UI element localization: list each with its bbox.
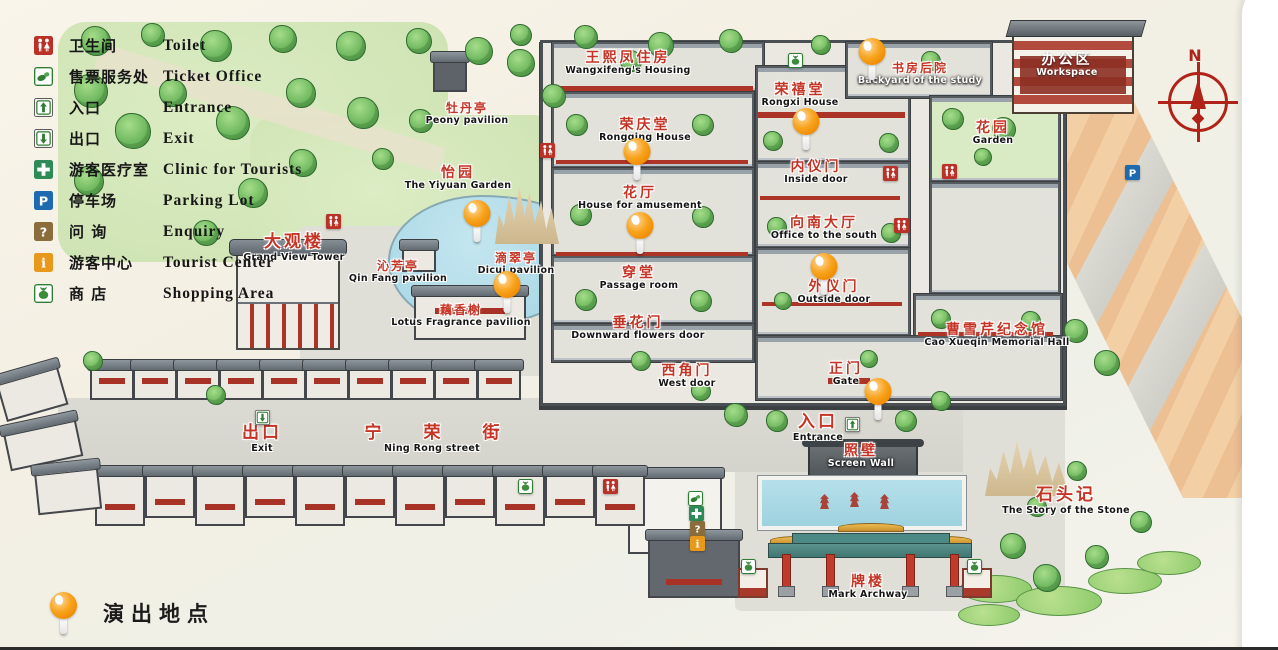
tree [719, 29, 743, 53]
map-label-office-to-south: 向南大厅Office to the south [771, 215, 877, 242]
svg-text:P: P [39, 194, 48, 209]
performance-marker[interactable] [464, 200, 491, 242]
red-sign [155, 499, 184, 505]
red-wall [760, 196, 900, 200]
shop-building [262, 366, 306, 400]
tree [724, 403, 748, 427]
red-sign [255, 499, 284, 505]
tree [566, 114, 588, 136]
red-sign [142, 378, 168, 384]
red-sign [666, 579, 722, 585]
performance-marker-icon [50, 592, 77, 634]
marker-stem [637, 237, 644, 254]
marker-head [624, 138, 651, 165]
map-label-workspace: 办公区Workspace [1036, 52, 1097, 79]
red-sign [105, 504, 134, 510]
red-wall [556, 160, 748, 164]
marker-stem [504, 296, 511, 313]
map-label-screen-wall: 照壁Screen Wall [828, 443, 894, 470]
toilet-icon [540, 143, 555, 158]
archway-base [946, 586, 963, 597]
toilet-icon [603, 479, 618, 494]
map-label-garden: 花园Garden [973, 120, 1014, 147]
toilet-icon [34, 36, 53, 55]
svg-text:P: P [1129, 168, 1136, 179]
svg-text:i: i [41, 257, 46, 272]
enquiry-icon: ? [690, 521, 705, 536]
tourist-center-icon: i [690, 536, 705, 551]
compass-needle-tail [1192, 112, 1205, 125]
red-sign [99, 378, 125, 384]
shop-building [145, 472, 195, 518]
tree [575, 289, 597, 311]
shop-building [395, 472, 445, 526]
entrance-icon [34, 98, 53, 117]
entrance-icon [845, 417, 860, 432]
map-label-ningrong-street: 宁荣街Ning Rong street [323, 424, 542, 454]
legend-item-shopping: 商 店Shopping Area [34, 278, 302, 309]
legend-item-exit: 出口Exit [34, 123, 302, 154]
tree [766, 410, 788, 432]
exit-icon [255, 410, 270, 425]
enquiry-icon: ? [34, 222, 53, 241]
legend-item-enquiry: ?问 询Enquiry [34, 216, 302, 247]
tree [774, 292, 792, 310]
tree [83, 351, 103, 371]
svg-text:i: i [696, 539, 700, 551]
tree [336, 31, 366, 61]
map-label-house-for-amusement: 花厅House for amusement [578, 185, 702, 212]
screen-wall-pool [758, 476, 966, 530]
tree [631, 351, 651, 371]
shop-building [445, 472, 495, 518]
red-sign [455, 499, 484, 505]
parking-icon: P [1125, 165, 1140, 180]
map-label-peony-pavilion: 牡丹亭Peony pavilion [426, 102, 509, 127]
marker-head [50, 592, 77, 619]
shopping-icon [741, 559, 756, 574]
marker-head [627, 212, 654, 239]
legend: 卫生间Toilet 售票服务处Ticket Office 入口Entrance … [34, 30, 302, 309]
archway-roof [838, 523, 904, 532]
shop-building [348, 366, 392, 400]
red-sign [228, 378, 254, 384]
tree [372, 148, 394, 170]
tree [1000, 533, 1026, 559]
tourist-center-icon: i [34, 253, 53, 272]
tree [1130, 511, 1152, 533]
map-label-passage-room: 穿堂Passage room [600, 265, 679, 292]
tree [974, 148, 992, 166]
marker-stem [875, 403, 882, 420]
marker-stem [474, 225, 481, 242]
map-label-downward-flowers-door: 垂花门Downward flowers door [571, 315, 705, 342]
pool-pagoda [820, 494, 829, 509]
red-sign [357, 378, 383, 384]
red-wall [757, 112, 905, 118]
performance-marker[interactable] [865, 378, 892, 420]
ticket-office-icon [34, 67, 53, 86]
shop-building [305, 366, 349, 400]
map-label-entrance: 入口Entrance [793, 413, 843, 443]
red-sign [205, 504, 234, 510]
map-label-mark-archway: 牌楼Mark Archway [828, 574, 907, 601]
red-sign [305, 504, 334, 510]
map-label-west-door: 西角门West door [658, 363, 715, 390]
shopping-icon [967, 559, 982, 574]
map-label-rongxi-house: 荣禧堂Rongxi House [761, 82, 838, 109]
tree [690, 290, 712, 312]
tree [1094, 350, 1120, 376]
svg-text:?: ? [40, 225, 47, 240]
legend-item-entrance: 入口Entrance [34, 92, 302, 123]
archway-column [950, 554, 959, 590]
archway-base [778, 586, 795, 597]
tree [347, 97, 379, 129]
red-sign [400, 378, 426, 384]
compass-needle [1190, 79, 1206, 109]
tree [895, 410, 917, 432]
bush [1137, 551, 1201, 575]
tree [763, 131, 783, 151]
tree [692, 114, 714, 136]
red-sign [443, 378, 469, 384]
shop-building [345, 472, 395, 518]
marker-stem [821, 278, 828, 295]
red-sign [605, 504, 634, 510]
red-sign [555, 499, 584, 505]
shopping-icon [518, 479, 533, 494]
marker-head [494, 271, 521, 298]
tree [1085, 545, 1109, 569]
tree [942, 108, 964, 130]
shop-building [195, 472, 245, 526]
peony-pavilion-building [433, 58, 467, 92]
screen-bezel [1242, 0, 1278, 650]
map-label-exit: 出口Exit [242, 424, 282, 454]
red-sign [185, 378, 211, 384]
performance-marker[interactable] [624, 138, 651, 180]
toilet-icon [883, 166, 898, 181]
shop-building [90, 366, 134, 400]
map-label-wangxifeng-housing: 王熙凤住房Wangxifeng's Housing [565, 50, 690, 77]
bush [1016, 586, 1102, 616]
ticket-office-icon [688, 491, 703, 506]
tree [1033, 564, 1061, 592]
red-sign [486, 378, 512, 384]
red-sign [405, 504, 434, 510]
tree [510, 24, 532, 46]
marker-stem [634, 163, 641, 180]
legend-item-clinic: 游客医疗室Clinic for Tourists [34, 154, 302, 185]
marker-stem [60, 617, 67, 634]
shop-building [245, 472, 295, 518]
map-label-inside-door: 内仪门Inside door [784, 159, 848, 186]
shop-building [133, 366, 177, 400]
shop-building [295, 472, 345, 526]
red-sign [505, 504, 534, 510]
legend-item-parking: P停车场Parking Lot [34, 185, 302, 216]
performance-marker[interactable] [793, 108, 820, 150]
map-label-gate: 正门Gate [829, 361, 863, 388]
grand-view-garden-map: N 王熙凤住房Wangxifeng's Housing 书房后院Backyard… [0, 0, 1278, 650]
compass-north-label: N [1188, 46, 1201, 65]
pool-pagoda [850, 492, 859, 507]
map-label-yiyuan-garden: 怡园The Yiyuan Garden [405, 165, 512, 192]
shop-building [391, 366, 435, 400]
pool-pagoda [880, 494, 889, 509]
court-side [930, 182, 1060, 294]
shop-building [34, 465, 102, 515]
map-label-caoxueqin-memorial: 曹雪芹纪念馆Cao Xueqin Memorial Hall [924, 322, 1069, 349]
marker-head [793, 108, 820, 135]
shopping-icon [788, 53, 803, 68]
red-sign [271, 378, 297, 384]
red-sign [355, 499, 384, 505]
tree [406, 28, 432, 54]
marker-head [811, 253, 838, 280]
toilet-icon [894, 218, 909, 233]
toilet-icon [326, 214, 341, 229]
performance-legend-label: 演出地点 [103, 598, 215, 628]
shop-building [477, 366, 521, 400]
archway-column [782, 554, 791, 590]
performance-marker[interactable] [494, 271, 521, 313]
tree [542, 84, 566, 108]
red-wall [558, 86, 753, 91]
shop-building [95, 472, 145, 526]
tree [206, 385, 226, 405]
legend-performance: 演出地点 [50, 592, 215, 634]
marker-stem [869, 63, 876, 80]
shopping-icon [34, 284, 53, 303]
tree [574, 25, 598, 49]
toilet-icon [942, 164, 957, 179]
performance-marker[interactable] [859, 38, 886, 80]
tree [879, 133, 899, 153]
tree [465, 37, 493, 65]
parking-icon: P [34, 191, 53, 210]
svg-text:?: ? [695, 524, 701, 535]
bush [958, 604, 1020, 626]
legend-item-toilet: 卫生间Toilet [34, 30, 302, 61]
performance-marker[interactable] [627, 212, 654, 254]
shop-building [434, 366, 478, 400]
marker-head [859, 38, 886, 65]
tree [1067, 461, 1087, 481]
map-label-qinfang-pavilion: 沁芳亭Qin Fang pavilion [349, 260, 447, 285]
compass-icon [1168, 72, 1228, 132]
clinic-icon [34, 160, 53, 179]
archway-beam [768, 543, 972, 558]
legend-item-ticket-office: 售票服务处Ticket Office [34, 61, 302, 92]
marker-head [464, 200, 491, 227]
shop-building [545, 472, 595, 518]
clinic-icon [689, 506, 704, 521]
exit-icon [34, 129, 53, 148]
map-label-story-of-the-stone: 石头记The Story of the Stone [1002, 486, 1130, 516]
tree [931, 391, 951, 411]
red-sign [314, 378, 340, 384]
tree [507, 49, 535, 77]
legend-item-tourist-center: i游客中心Tourist Center [34, 247, 302, 278]
performance-marker[interactable] [811, 253, 838, 295]
marker-stem [803, 133, 810, 150]
marker-head [865, 378, 892, 405]
tree [811, 35, 831, 55]
